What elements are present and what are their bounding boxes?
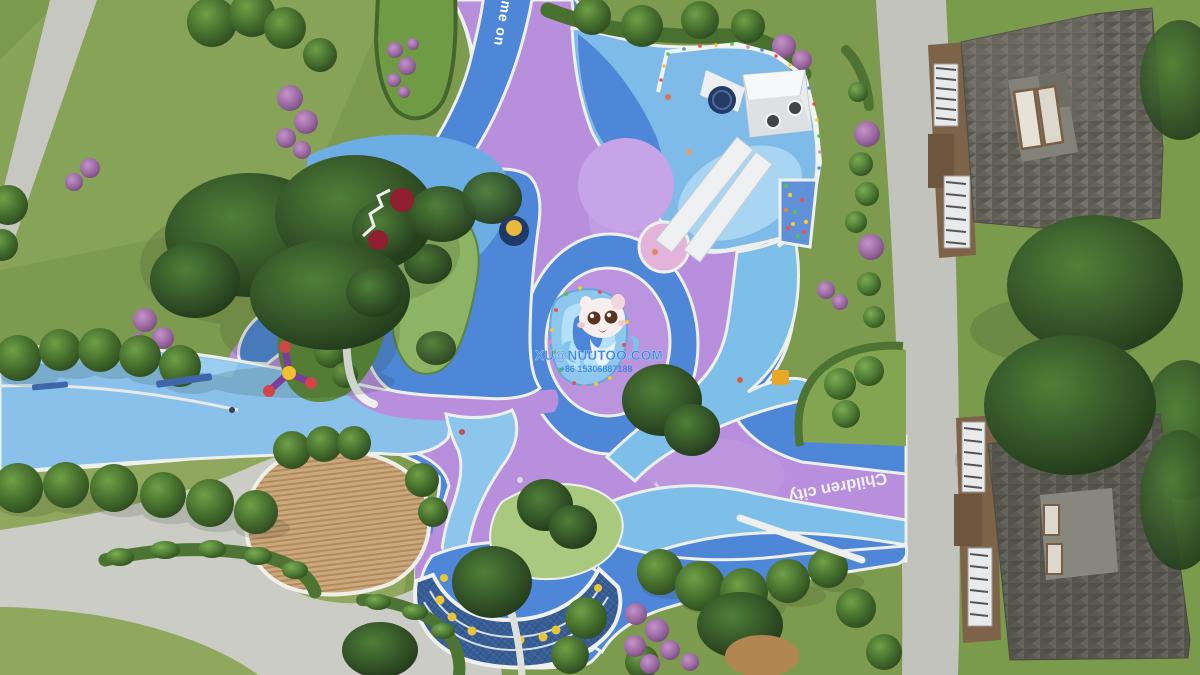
svg-text:+86 15306887188: +86 15306887188 [560, 364, 633, 374]
svg-text:XU@NUUTOO.COM: XU@NUUTOO.COM [535, 348, 663, 363]
